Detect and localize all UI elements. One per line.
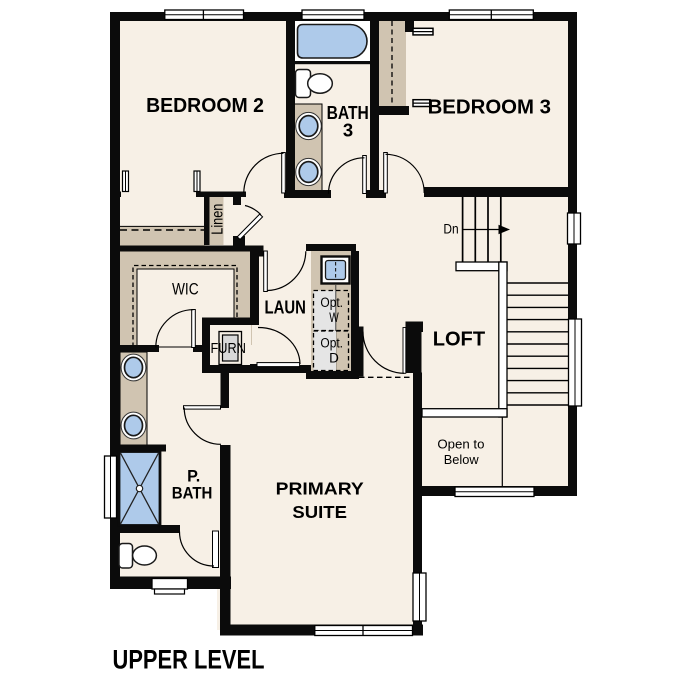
svg-text:P.: P. (187, 468, 200, 486)
svg-text:UPPER LEVEL: UPPER LEVEL (113, 645, 265, 675)
svg-text:W: W (329, 310, 339, 325)
svg-text:Below: Below (444, 452, 479, 467)
svg-text:D: D (329, 350, 339, 365)
svg-text:FURN: FURN (211, 341, 246, 357)
svg-text:BEDROOM 2: BEDROOM 2 (146, 94, 264, 117)
svg-text:LAUN: LAUN (265, 296, 306, 317)
svg-text:Linen: Linen (210, 204, 227, 235)
svg-text:Opt.: Opt. (320, 295, 343, 310)
svg-text:Dn: Dn (443, 222, 458, 237)
svg-text:Opt.: Opt. (320, 335, 343, 350)
svg-text:WIC: WIC (172, 281, 199, 299)
svg-text:PRIMARY: PRIMARY (276, 479, 365, 499)
svg-text:LOFT: LOFT (433, 329, 486, 351)
svg-text:BEDROOM 3: BEDROOM 3 (428, 95, 551, 118)
svg-text:SUITE: SUITE (292, 502, 347, 522)
svg-text:Open to: Open to (437, 436, 484, 451)
svg-text:3: 3 (343, 120, 353, 141)
svg-text:BATH: BATH (172, 485, 213, 503)
